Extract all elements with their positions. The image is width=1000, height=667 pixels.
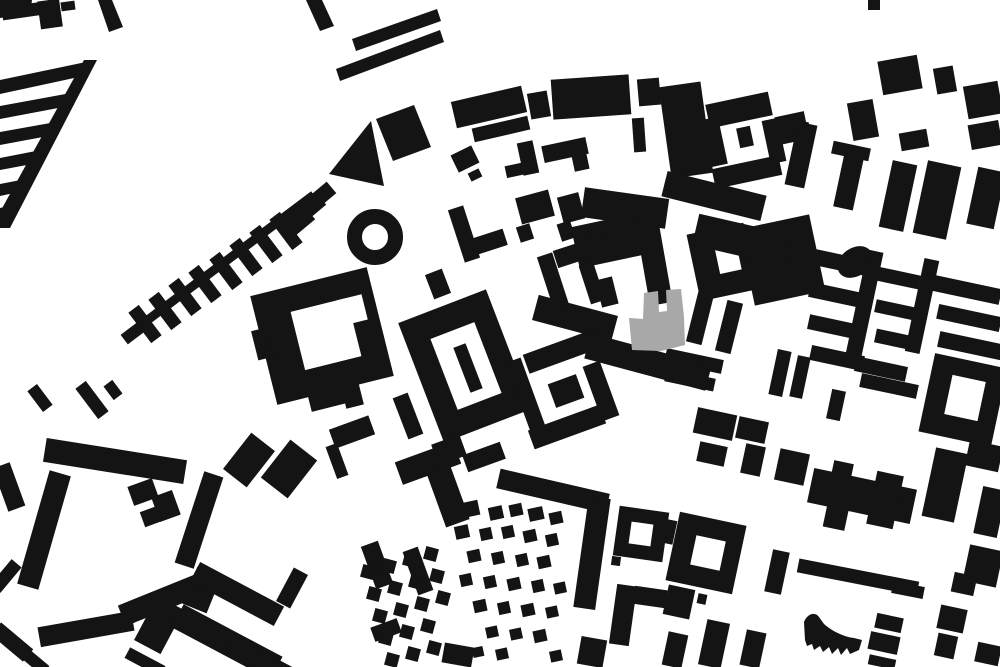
building (557, 192, 585, 224)
building (441, 643, 474, 667)
building (637, 78, 661, 107)
building (548, 374, 585, 408)
building (450, 145, 479, 172)
building (973, 486, 1000, 538)
building (868, 654, 896, 667)
building (632, 118, 646, 153)
building (933, 65, 957, 94)
building (826, 389, 846, 421)
parallelogram-building (376, 105, 431, 161)
small-square-building (372, 608, 388, 624)
small-square-building (459, 573, 473, 587)
building (934, 633, 958, 660)
building (611, 556, 621, 566)
small-square-building (532, 629, 547, 643)
small-square-building (522, 529, 537, 543)
eyelash-building (804, 614, 862, 655)
building (462, 442, 506, 473)
comb-tooth (808, 282, 864, 308)
building (715, 300, 743, 354)
building (551, 74, 632, 119)
building (740, 443, 766, 477)
building (27, 384, 52, 412)
building (663, 585, 696, 620)
diagonal-sliver (98, 0, 123, 32)
enclosure-wall (573, 496, 610, 610)
building (103, 380, 122, 400)
figure-ground-map (0, 0, 1000, 667)
small-square-building (426, 640, 442, 656)
courtyard-void (629, 522, 654, 547)
building (276, 567, 308, 608)
highlighted-building (629, 289, 685, 351)
small-square-building (472, 599, 487, 613)
small-square-building (366, 586, 382, 602)
small-square-building (495, 647, 509, 660)
small-square-building (483, 575, 497, 589)
building (877, 55, 922, 95)
building (609, 584, 637, 646)
small-square-building (515, 553, 529, 567)
building (736, 126, 754, 148)
courtyard-void (690, 535, 726, 571)
building (968, 120, 1000, 150)
comb-tooth (875, 267, 921, 290)
building (662, 631, 689, 667)
small-square-building (501, 525, 515, 539)
small-square-building (454, 524, 470, 540)
building (739, 629, 766, 667)
building (693, 407, 738, 441)
building (470, 229, 508, 256)
small-square-building (531, 579, 545, 593)
perimeter-wall (37, 611, 134, 647)
building (789, 355, 810, 399)
building (879, 160, 918, 232)
building (932, 275, 1000, 305)
small-square-building (479, 527, 493, 541)
small-square-building (520, 603, 535, 617)
building (764, 549, 790, 595)
building (516, 223, 534, 243)
building (393, 393, 424, 440)
building (37, 0, 63, 29)
diagonal-sliver (306, 0, 334, 31)
building (686, 291, 714, 345)
small-square-building (488, 505, 504, 521)
building (577, 636, 607, 667)
building (774, 448, 810, 486)
small-square-building (491, 551, 505, 565)
small-square-building (423, 546, 439, 562)
building (696, 441, 728, 466)
perimeter-wall (175, 471, 224, 568)
building (936, 304, 1000, 332)
building (632, 586, 667, 608)
small-square-building (553, 581, 567, 594)
building (225, 636, 295, 667)
building (515, 190, 555, 225)
perimeter-wall (17, 470, 71, 589)
small-square-building (536, 555, 551, 569)
building (0, 462, 25, 511)
building (966, 167, 1000, 230)
small-square-building (435, 590, 451, 606)
building (913, 160, 962, 239)
building (963, 81, 1000, 120)
small-square-building (548, 511, 563, 525)
small-square-building (545, 533, 559, 547)
building (425, 269, 451, 300)
building (899, 129, 930, 152)
building (974, 642, 1000, 667)
small-square-building (549, 649, 563, 662)
building (698, 619, 730, 667)
building (922, 447, 969, 522)
building (557, 220, 576, 241)
small-square-building (497, 601, 511, 615)
small-square-building (545, 605, 559, 618)
small-square-building (506, 577, 521, 591)
building (868, 0, 880, 10)
small-square-building (485, 625, 499, 638)
building (768, 349, 791, 397)
small-square-building (384, 652, 400, 667)
building (0, 559, 22, 593)
building (697, 593, 708, 605)
small-square-building (399, 624, 415, 640)
building (468, 168, 483, 181)
building (965, 440, 1000, 473)
building (936, 604, 967, 633)
figure-ground-site-plan (0, 0, 1000, 667)
building (874, 613, 904, 633)
small-square-building (420, 618, 436, 634)
building (60, 1, 75, 12)
small-square-building (405, 646, 421, 662)
comb-tooth (807, 314, 861, 339)
small-square-building (414, 596, 430, 612)
small-square-building (466, 549, 481, 563)
building (527, 90, 551, 119)
arrowhead-building (329, 121, 384, 186)
small-square-building (508, 503, 523, 517)
building (830, 460, 854, 484)
building (735, 416, 769, 444)
building (847, 99, 879, 141)
small-square-building (527, 506, 544, 522)
building (867, 631, 900, 655)
small-square-building (509, 627, 523, 640)
building (326, 443, 349, 479)
small-square-building (393, 602, 409, 618)
small-square-building (429, 568, 445, 584)
comb-tooth (874, 299, 918, 320)
circular-building (355, 217, 396, 258)
